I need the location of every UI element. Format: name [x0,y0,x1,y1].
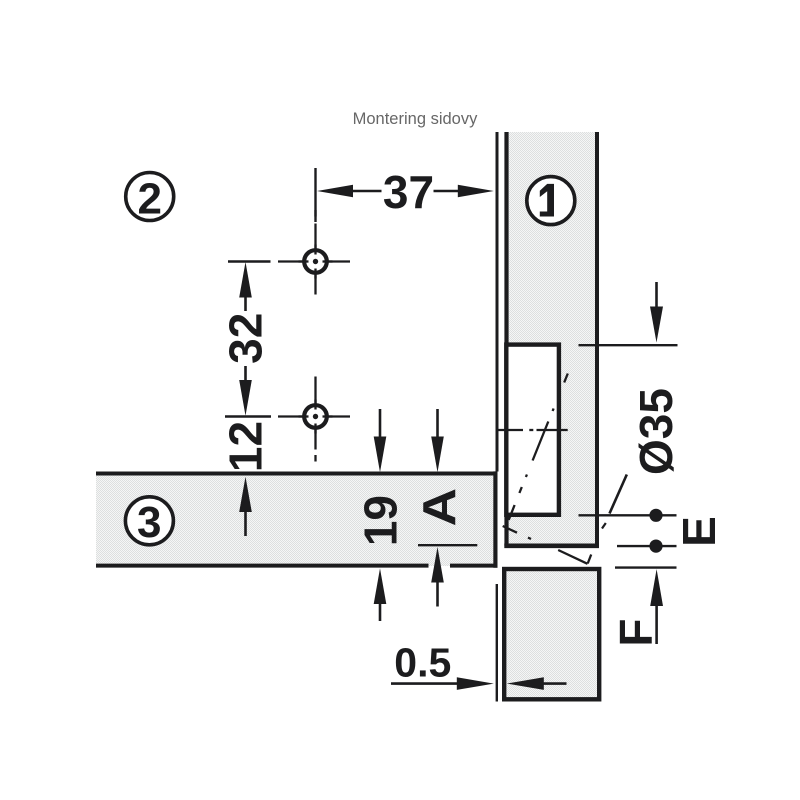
svg-text:Montering sidovy: Montering sidovy [353,110,478,128]
svg-text:0.5: 0.5 [394,639,451,685]
svg-text:32: 32 [219,313,271,364]
svg-text:2: 2 [137,175,161,224]
svg-text:3: 3 [137,498,161,547]
svg-text:37: 37 [383,166,434,218]
svg-text:Ø35: Ø35 [630,388,682,475]
svg-text:F: F [609,619,661,647]
svg-text:19: 19 [355,495,407,546]
svg-text:E: E [673,516,725,547]
svg-text:12: 12 [219,421,271,472]
svg-text:A: A [413,488,465,527]
